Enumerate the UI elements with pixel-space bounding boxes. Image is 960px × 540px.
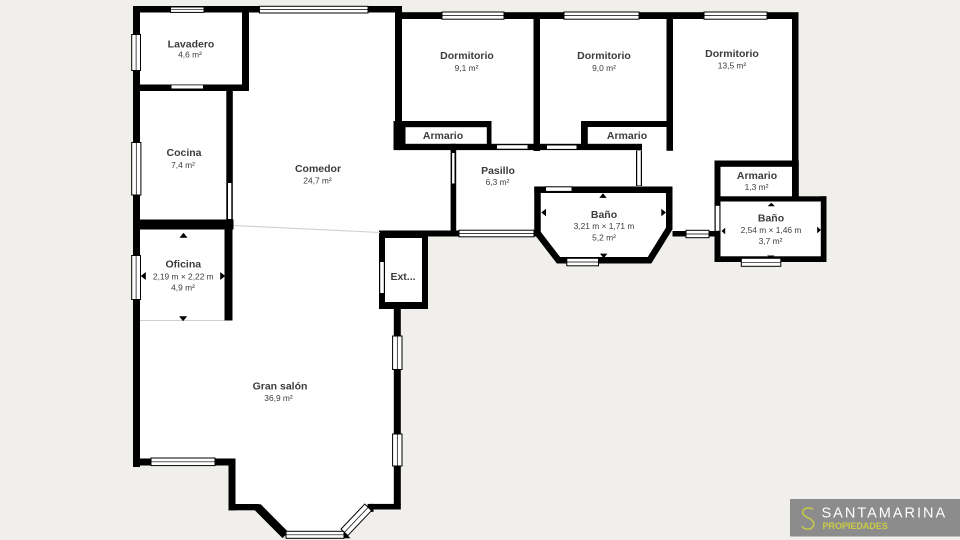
svg-text:Oficina: Oficina bbox=[166, 259, 202, 271]
svg-text:2,19 m × 2,22 m: 2,19 m × 2,22 m bbox=[153, 272, 214, 282]
svg-text:24,7 m²: 24,7 m² bbox=[303, 176, 332, 186]
svg-text:Baño: Baño bbox=[758, 212, 784, 224]
svg-text:2,54 m × 1,46 m: 2,54 m × 1,46 m bbox=[741, 225, 802, 235]
svg-text:Gran salón: Gran salón bbox=[253, 381, 308, 393]
svg-text:7,4 m²: 7,4 m² bbox=[171, 160, 195, 170]
svg-text:Dormitorio: Dormitorio bbox=[440, 50, 494, 62]
svg-text:SANTAMARINA: SANTAMARINA bbox=[822, 505, 948, 521]
svg-text:3,7 m²: 3,7 m² bbox=[759, 236, 783, 246]
svg-text:Dormitorio: Dormitorio bbox=[577, 50, 631, 62]
svg-text:4,6 m²: 4,6 m² bbox=[178, 50, 202, 60]
svg-text:3,21 m × 1,71 m: 3,21 m × 1,71 m bbox=[574, 221, 635, 231]
svg-text:9,0 m²: 9,0 m² bbox=[592, 63, 616, 73]
svg-text:4,9 m²: 4,9 m² bbox=[171, 283, 195, 293]
svg-text:Armario: Armario bbox=[737, 170, 777, 182]
svg-text:36,9 m²: 36,9 m² bbox=[264, 393, 293, 403]
svg-text:5,2 m²: 5,2 m² bbox=[592, 233, 616, 243]
svg-text:PROPIEDADES: PROPIEDADES bbox=[823, 521, 888, 531]
svg-text:Cocina: Cocina bbox=[166, 147, 201, 159]
svg-text:Pasillo: Pasillo bbox=[481, 165, 515, 177]
svg-text:Comedor: Comedor bbox=[295, 163, 341, 175]
svg-text:Baño: Baño bbox=[591, 209, 617, 221]
svg-text:Armario: Armario bbox=[607, 130, 647, 142]
svg-text:1,3 m²: 1,3 m² bbox=[745, 182, 769, 192]
svg-text:Ext...: Ext... bbox=[390, 271, 415, 283]
svg-text:13,5 m²: 13,5 m² bbox=[718, 61, 747, 71]
svg-text:Armario: Armario bbox=[423, 130, 463, 142]
svg-text:Dormitorio: Dormitorio bbox=[705, 48, 759, 60]
svg-text:6,3 m²: 6,3 m² bbox=[486, 177, 510, 187]
svg-text:9,1 m²: 9,1 m² bbox=[455, 63, 479, 73]
